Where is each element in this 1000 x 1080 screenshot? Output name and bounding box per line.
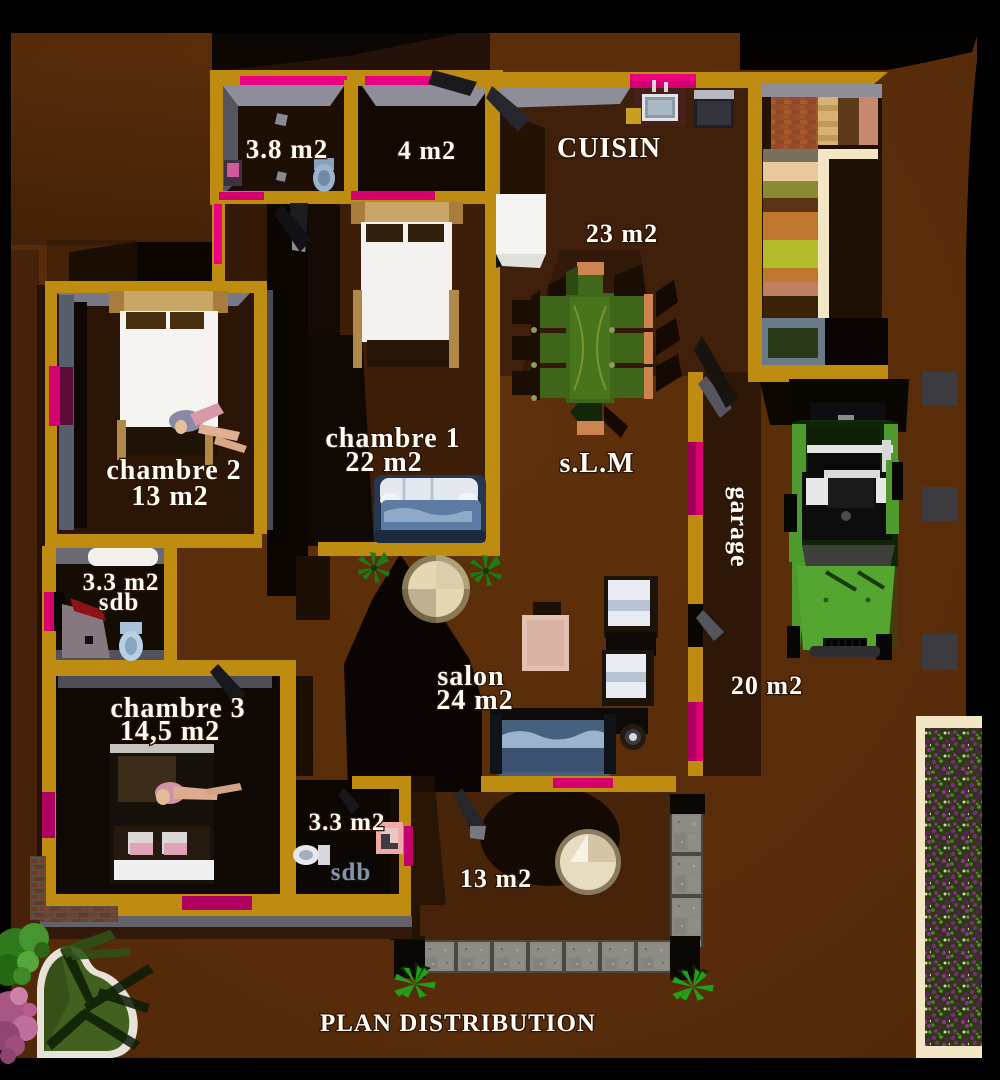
svg-text:14,5 m2: 14,5 m2 <box>120 716 220 747</box>
svg-text:22 m2: 22 m2 <box>345 447 422 478</box>
svg-text:13 m2: 13 m2 <box>131 481 208 512</box>
svg-text:garage: garage <box>725 486 754 567</box>
svg-text:20 m2: 20 m2 <box>731 671 803 700</box>
svg-text:4 m2: 4 m2 <box>398 136 456 165</box>
svg-text:s.L.M: s.L.M <box>560 448 635 479</box>
svg-text:CUISIN: CUISIN <box>557 133 661 164</box>
svg-text:sdb: sdb <box>99 589 140 616</box>
svg-text:3.8 m2: 3.8 m2 <box>246 134 329 164</box>
svg-text:sdb: sdb <box>331 859 372 886</box>
svg-text:3.3 m2: 3.3 m2 <box>309 809 386 836</box>
svg-text:24 m2: 24 m2 <box>436 685 513 716</box>
svg-text:23 m2: 23 m2 <box>586 219 658 248</box>
svg-text:PLAN DISTRIBUTION: PLAN DISTRIBUTION <box>320 1010 596 1037</box>
svg-text:13 m2: 13 m2 <box>460 864 532 893</box>
